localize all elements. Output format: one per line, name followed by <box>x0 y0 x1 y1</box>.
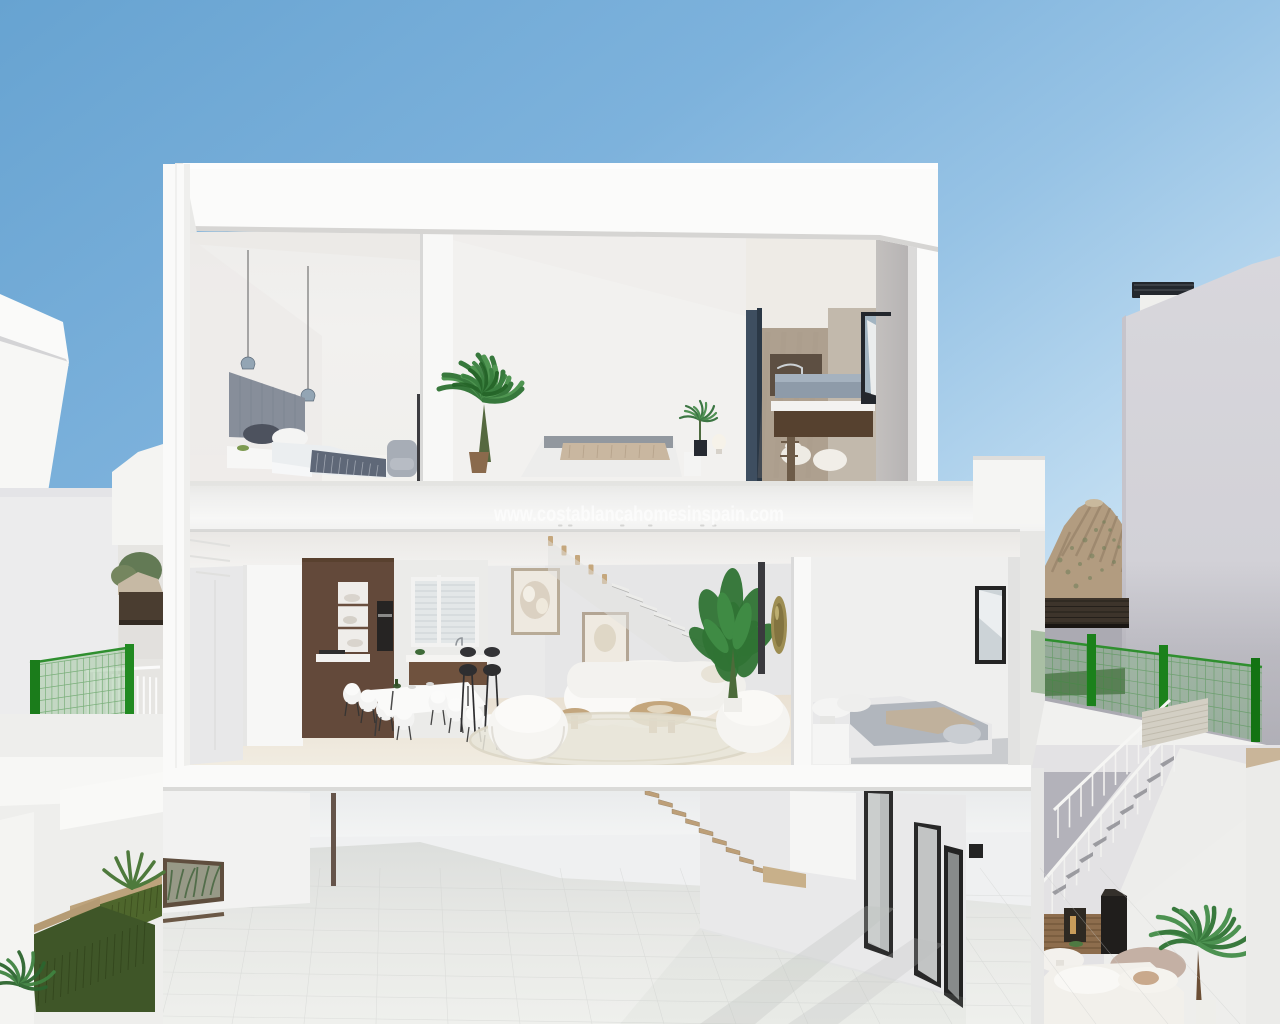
svg-text:www.costablancahomesinspain.co: www.costablancahomesinspain.com <box>493 502 784 526</box>
